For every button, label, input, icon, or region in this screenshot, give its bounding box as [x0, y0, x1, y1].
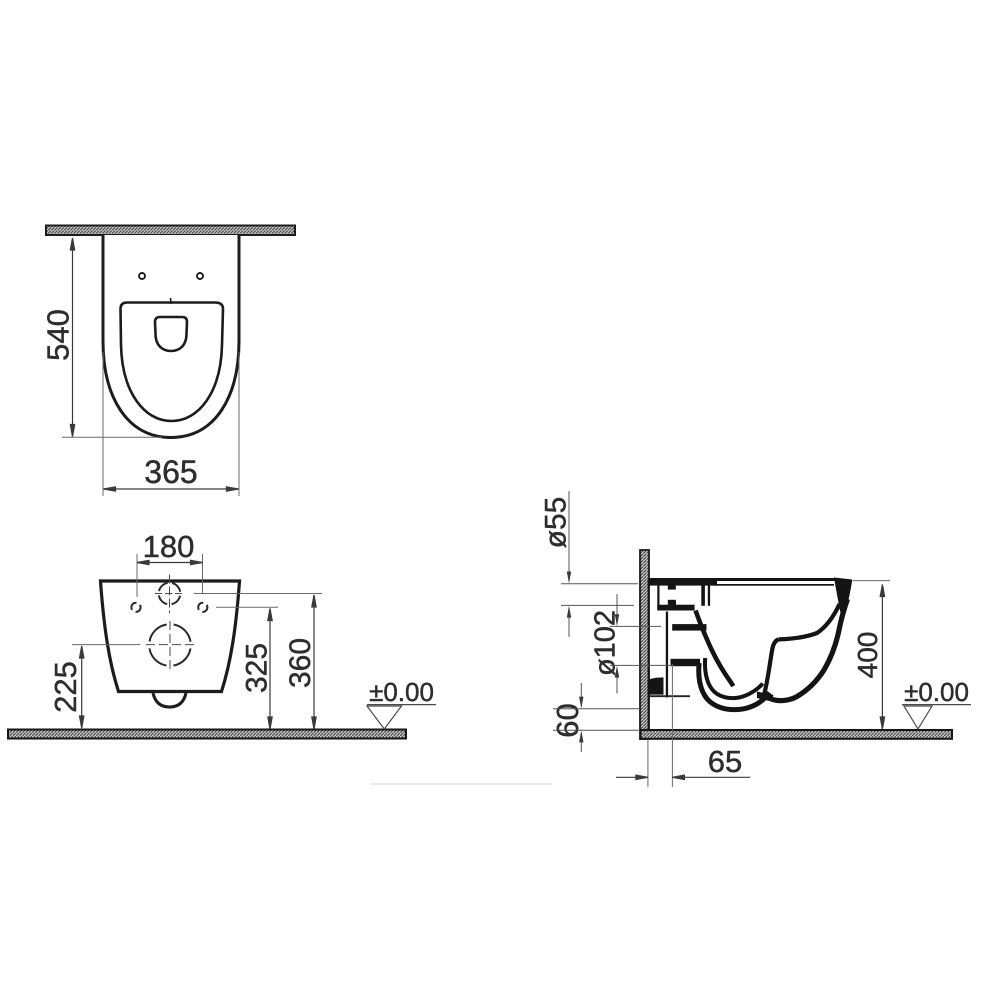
svg-text:540: 540	[41, 309, 76, 361]
svg-text:400: 400	[852, 632, 883, 679]
svg-text:65: 65	[708, 744, 742, 779]
svg-text:365: 365	[144, 454, 197, 490]
svg-text:360: 360	[284, 638, 317, 688]
svg-text:325: 325	[241, 643, 274, 693]
svg-text:180: 180	[143, 529, 195, 564]
svg-text:±0.00: ±0.00	[369, 677, 434, 707]
svg-text:225: 225	[48, 661, 83, 713]
svg-text:ø55: ø55	[540, 497, 573, 549]
svg-text:±0.00: ±0.00	[904, 677, 969, 707]
